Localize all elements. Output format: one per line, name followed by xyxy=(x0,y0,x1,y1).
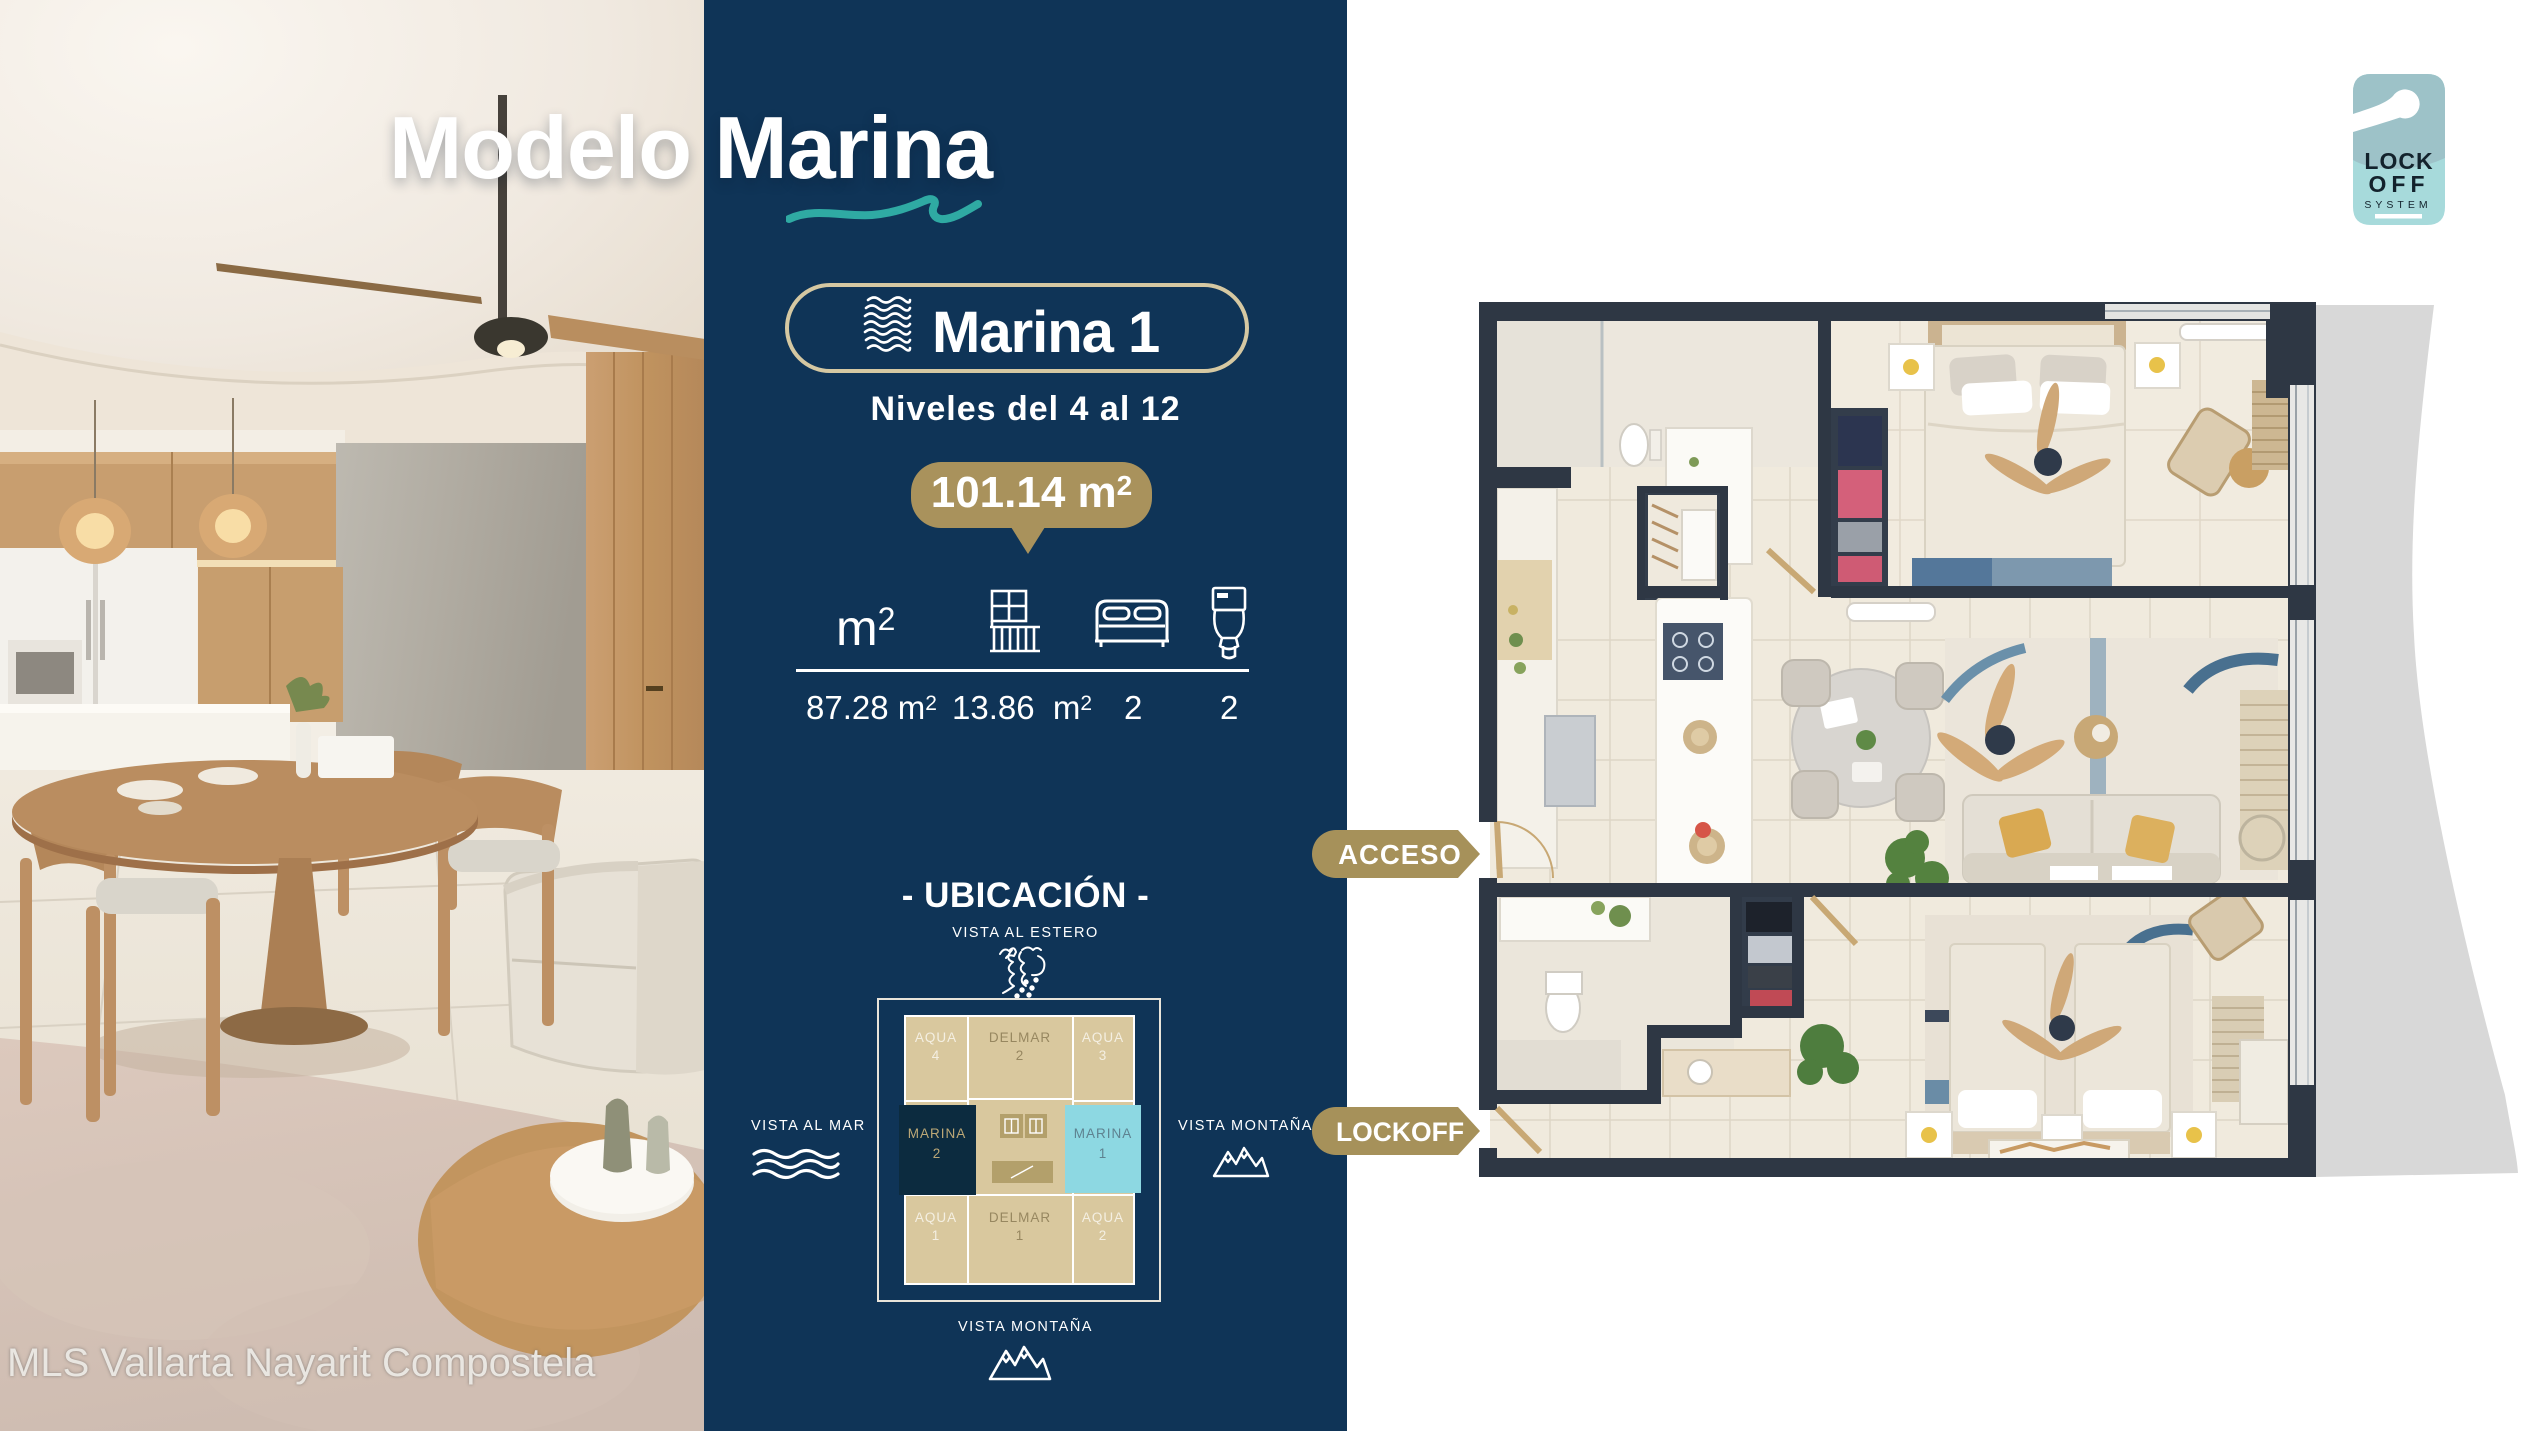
svg-text:AQUA: AQUA xyxy=(915,1030,957,1045)
svg-text:AQUA: AQUA xyxy=(1082,1030,1124,1045)
svg-text:DELMAR: DELMAR xyxy=(989,1030,1051,1045)
svg-text:OFF: OFF xyxy=(2369,171,2430,197)
svg-text:SYSTEM: SYSTEM xyxy=(2364,199,2431,211)
svg-text:1: 1 xyxy=(1016,1228,1025,1243)
svg-text:AQUA: AQUA xyxy=(915,1210,957,1225)
svg-text:2: 2 xyxy=(1099,1228,1108,1243)
svg-text:2: 2 xyxy=(933,1146,942,1161)
svg-text:LOCKOFF: LOCKOFF xyxy=(1336,1117,1464,1147)
svg-text:DELMAR: DELMAR xyxy=(989,1210,1051,1225)
svg-text:ACCESO: ACCESO xyxy=(1338,839,1462,870)
svg-text:1: 1 xyxy=(1099,1146,1108,1161)
svg-text:4: 4 xyxy=(932,1048,941,1063)
svg-text:MARINA: MARINA xyxy=(1074,1126,1133,1141)
svg-text:1: 1 xyxy=(932,1228,941,1243)
svg-text:MARINA: MARINA xyxy=(908,1126,967,1141)
svg-text:2: 2 xyxy=(1016,1048,1025,1063)
svg-text:3: 3 xyxy=(1099,1048,1108,1063)
svg-text:AQUA: AQUA xyxy=(1082,1210,1124,1225)
